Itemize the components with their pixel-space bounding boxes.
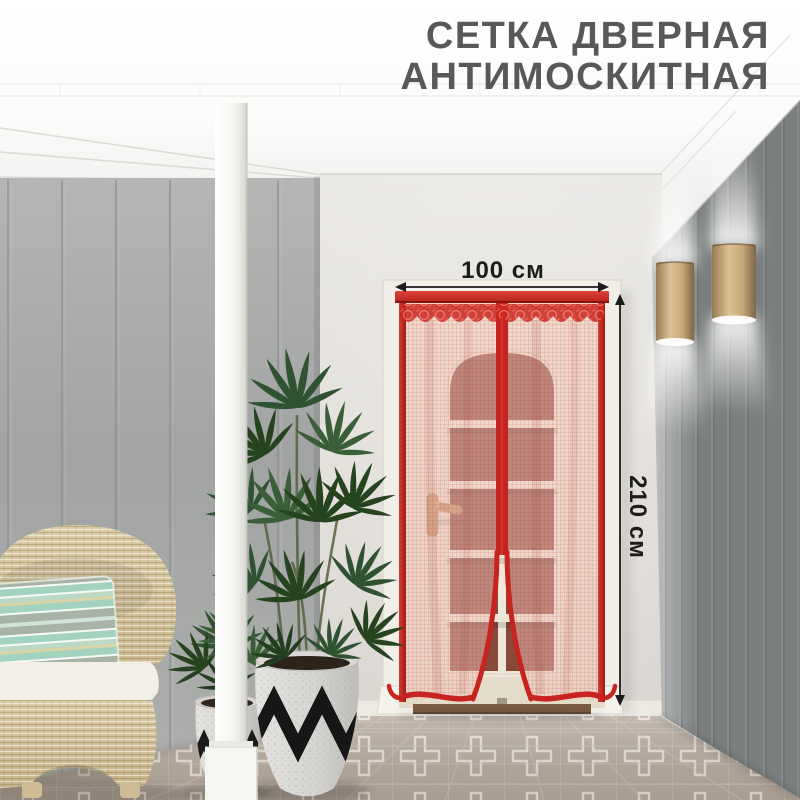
seat-cushion [0,662,159,705]
lamp-body [656,262,694,342]
scene-illustration: 100 см 210 см [0,0,800,800]
door-frame-right [605,280,621,714]
net-left-panel [403,303,497,699]
chair-foot [120,782,140,798]
door-assembly [377,280,632,722]
product-heading: СЕТКА ДВЕРНАЯ АНТИМОСКИТНАЯ [401,16,770,98]
pillow [0,576,119,677]
chair-foot [22,782,42,798]
armchair [0,525,176,798]
net-edge-right [598,303,605,702]
width-dimension-label: 100 см [461,257,545,284]
lamp-body [712,244,756,320]
heading-line-1: СЕТКА ДВЕРНАЯ [401,16,770,57]
heading-line-2: АНТИМОСКИТНАЯ [401,57,770,98]
product-image: 100 см 210 см [0,0,800,800]
height-dimension-label: 210 см [624,475,651,559]
net-edge-left [399,303,406,702]
net-right-panel [505,303,601,699]
